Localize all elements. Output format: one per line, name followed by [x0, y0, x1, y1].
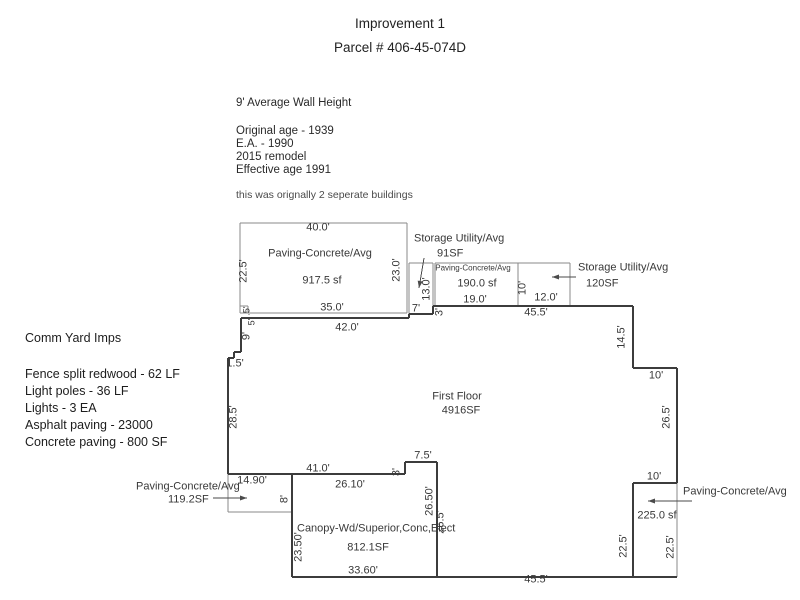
label-paving225-sf: 225.0 sf: [637, 511, 676, 522]
dim-paving1-bottom: 35.0': [320, 303, 344, 314]
dim-canopy-top: 26.10': [335, 480, 365, 491]
label-paving1-sf: 917.5 sf: [302, 276, 341, 287]
label-canopy-sf: 812.1SF: [347, 543, 389, 554]
sketch-drawing: [0, 0, 800, 600]
dim-paving119-width: 14.90': [237, 476, 267, 487]
dim-left-half: .5': [242, 306, 253, 315]
label-storage120-type: Storage Utility/Avg: [578, 263, 668, 274]
dim-storage91-width: 7': [412, 304, 420, 315]
label-canopy-type: Canopy-Wd/Superior,Conc,Elect: [297, 524, 455, 535]
label-paving225-type: Paving-Concrete/Avg: [683, 487, 787, 498]
label-first-floor-sf: 4916SF: [442, 406, 481, 417]
label-paving119-sf: 119.2SF: [168, 495, 209, 506]
sketch-page: Improvement 1 Parcel # 406-45-074D 9' Av…: [0, 0, 800, 600]
dim-left-1-5: 1.5': [226, 359, 243, 370]
label-paving190-type: Paving-Concrete/Avg: [435, 263, 510, 274]
dim-floor-right-22-5: 22.5': [619, 534, 630, 558]
dim-storage91-height: 13.0': [422, 277, 433, 301]
dim-step-3ft: 3': [435, 308, 446, 316]
label-storage91-sf: 91SF: [437, 249, 463, 260]
dim-canopy-left: 23.50': [294, 532, 305, 562]
dim-left-9: 9': [242, 332, 253, 340]
dim-floor-right-26-5: 26.5': [662, 405, 673, 429]
dim-paving1-left: 22.5': [239, 259, 250, 283]
dim-paving190-width: 19.0': [463, 295, 487, 306]
dim-paving1-top: 40.0': [306, 223, 330, 234]
dim-floor-bottom-41: 41.0': [306, 464, 330, 475]
arrow-paving119-head: [240, 496, 247, 501]
arrow-storage120-head: [552, 275, 559, 280]
label-first-floor: First Floor: [432, 392, 482, 403]
dim-paving1-right: 23.0': [392, 258, 403, 282]
arrow-paving225-head: [648, 499, 655, 504]
dim-floor-top-left: 42.0': [335, 323, 359, 334]
dim-left-5: 5': [247, 319, 258, 326]
dim-floor-right-14-5: 14.5': [617, 325, 628, 349]
dim-left-28-5: 28.5': [229, 405, 240, 429]
dim-floor-bottom-45-5: 45.5': [524, 575, 548, 586]
dim-floor-step-10: 10': [649, 371, 663, 382]
label-storage91-type: Storage Utility/Avg: [414, 234, 504, 245]
dim-paving225-right: 22.5': [666, 535, 677, 559]
dim-canopy-step-3: 3': [392, 468, 403, 476]
dim-paving119-height: 8': [280, 495, 291, 503]
dim-canopy-step-7-5: 7.5': [414, 451, 431, 462]
dim-floor-top-right: 45.5': [524, 308, 548, 319]
dim-floor-step2-10: 10': [647, 472, 661, 483]
dim-storage120-width: 12.0': [534, 293, 558, 304]
label-paving190-sf: 190.0 sf: [457, 279, 496, 290]
dim-canopy-bottom: 33.60': [348, 566, 378, 577]
label-paving1-type: Paving-Concrete/Avg: [268, 249, 372, 260]
dim-storage120-height: 10': [518, 281, 529, 295]
label-storage120-sf: 120SF: [586, 279, 618, 290]
label-paving119-type: Paving-Concrete/Avg: [136, 482, 240, 493]
